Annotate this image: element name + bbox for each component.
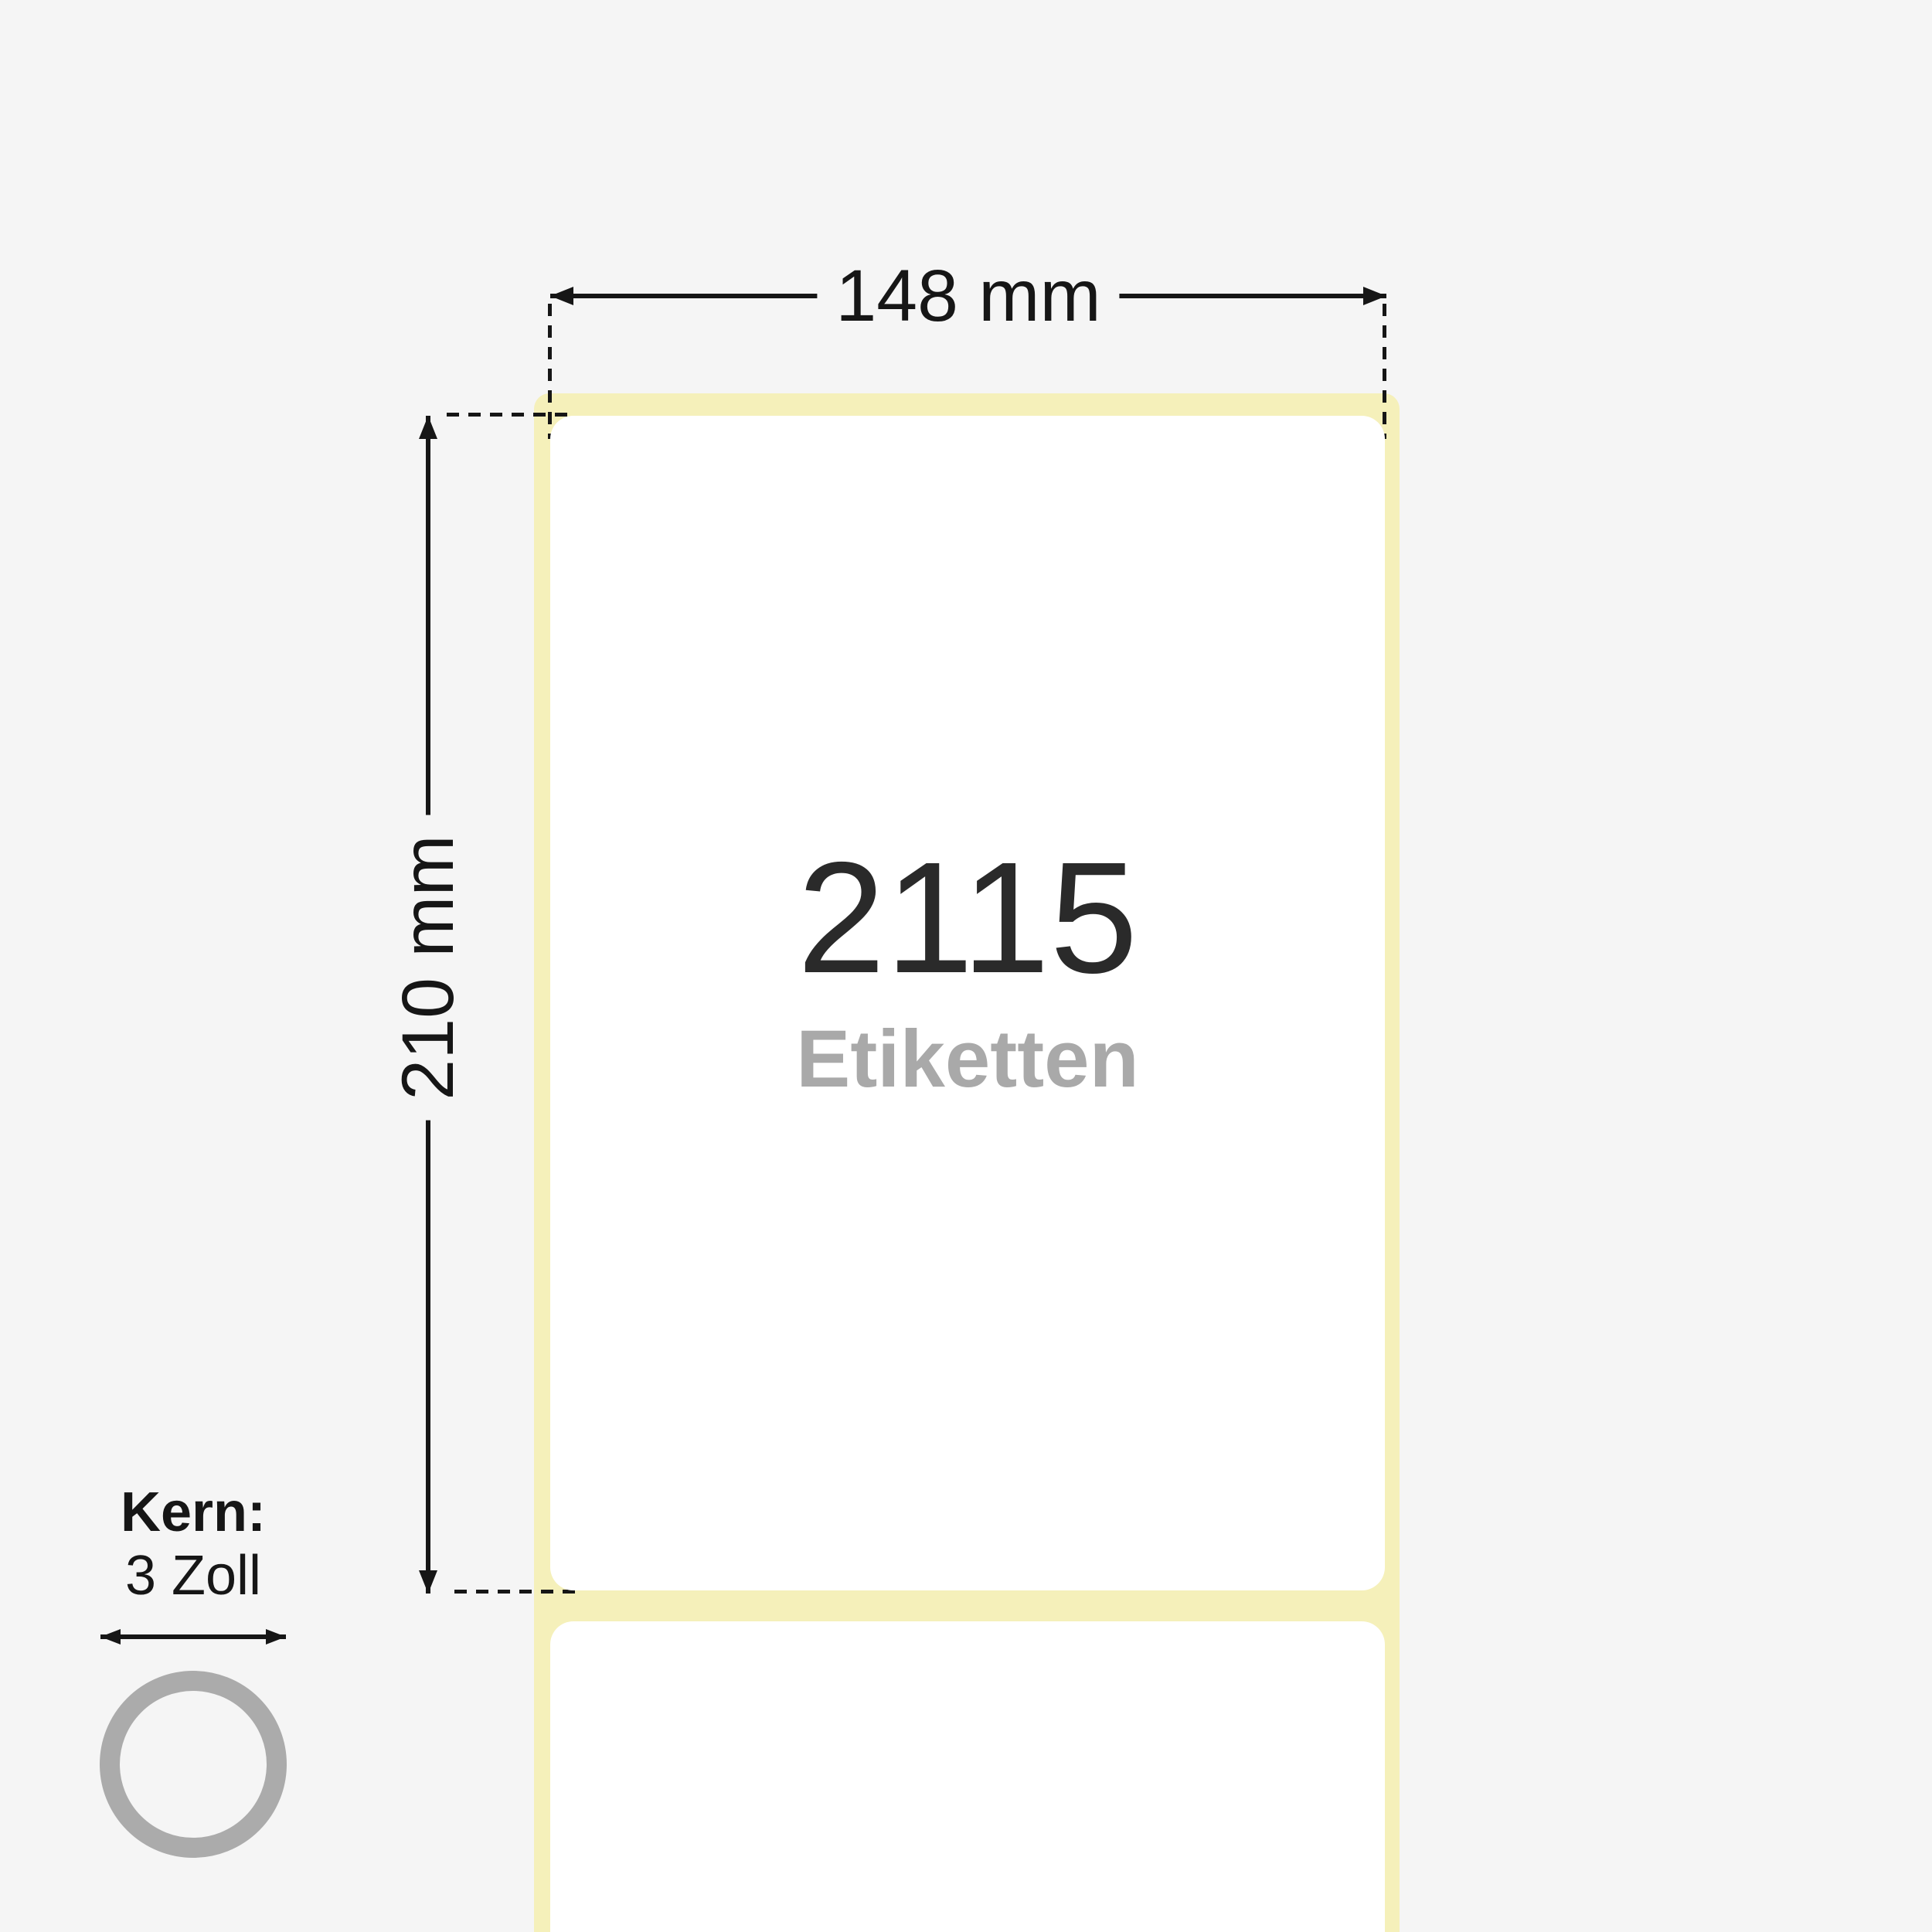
core-arrow-left-icon bbox=[100, 1629, 121, 1645]
extension-line-width-left bbox=[548, 304, 552, 439]
product-dimension-diagram: { "product": { "width_label": "148 mm", … bbox=[0, 0, 1932, 1932]
extension-line-height-bottom bbox=[454, 1590, 577, 1594]
arrow-up-icon bbox=[419, 416, 437, 439]
core-ring-icon bbox=[100, 1671, 287, 1858]
core-arrow-right-icon bbox=[266, 1629, 286, 1645]
label-sheet-next bbox=[550, 1621, 1385, 1932]
core-diameter-arrow-line bbox=[100, 1634, 286, 1639]
label-count: 2115 bbox=[798, 838, 1138, 997]
core-title: Kern: bbox=[121, 1485, 266, 1540]
extension-line-width-right bbox=[1383, 304, 1386, 439]
arrow-left-icon bbox=[550, 287, 573, 305]
arrow-right-icon bbox=[1363, 287, 1386, 305]
core-value: 3 Zoll bbox=[125, 1548, 261, 1604]
label-sheet-front: 2115 Etiketten bbox=[550, 416, 1385, 1590]
label-count-unit: Etiketten bbox=[796, 1019, 1138, 1100]
arrow-down-icon bbox=[419, 1570, 437, 1594]
extension-line-height-top bbox=[447, 413, 577, 417]
height-dimension-label: 210 mm bbox=[388, 815, 469, 1120]
width-dimension-label: 148 mm bbox=[817, 256, 1119, 337]
